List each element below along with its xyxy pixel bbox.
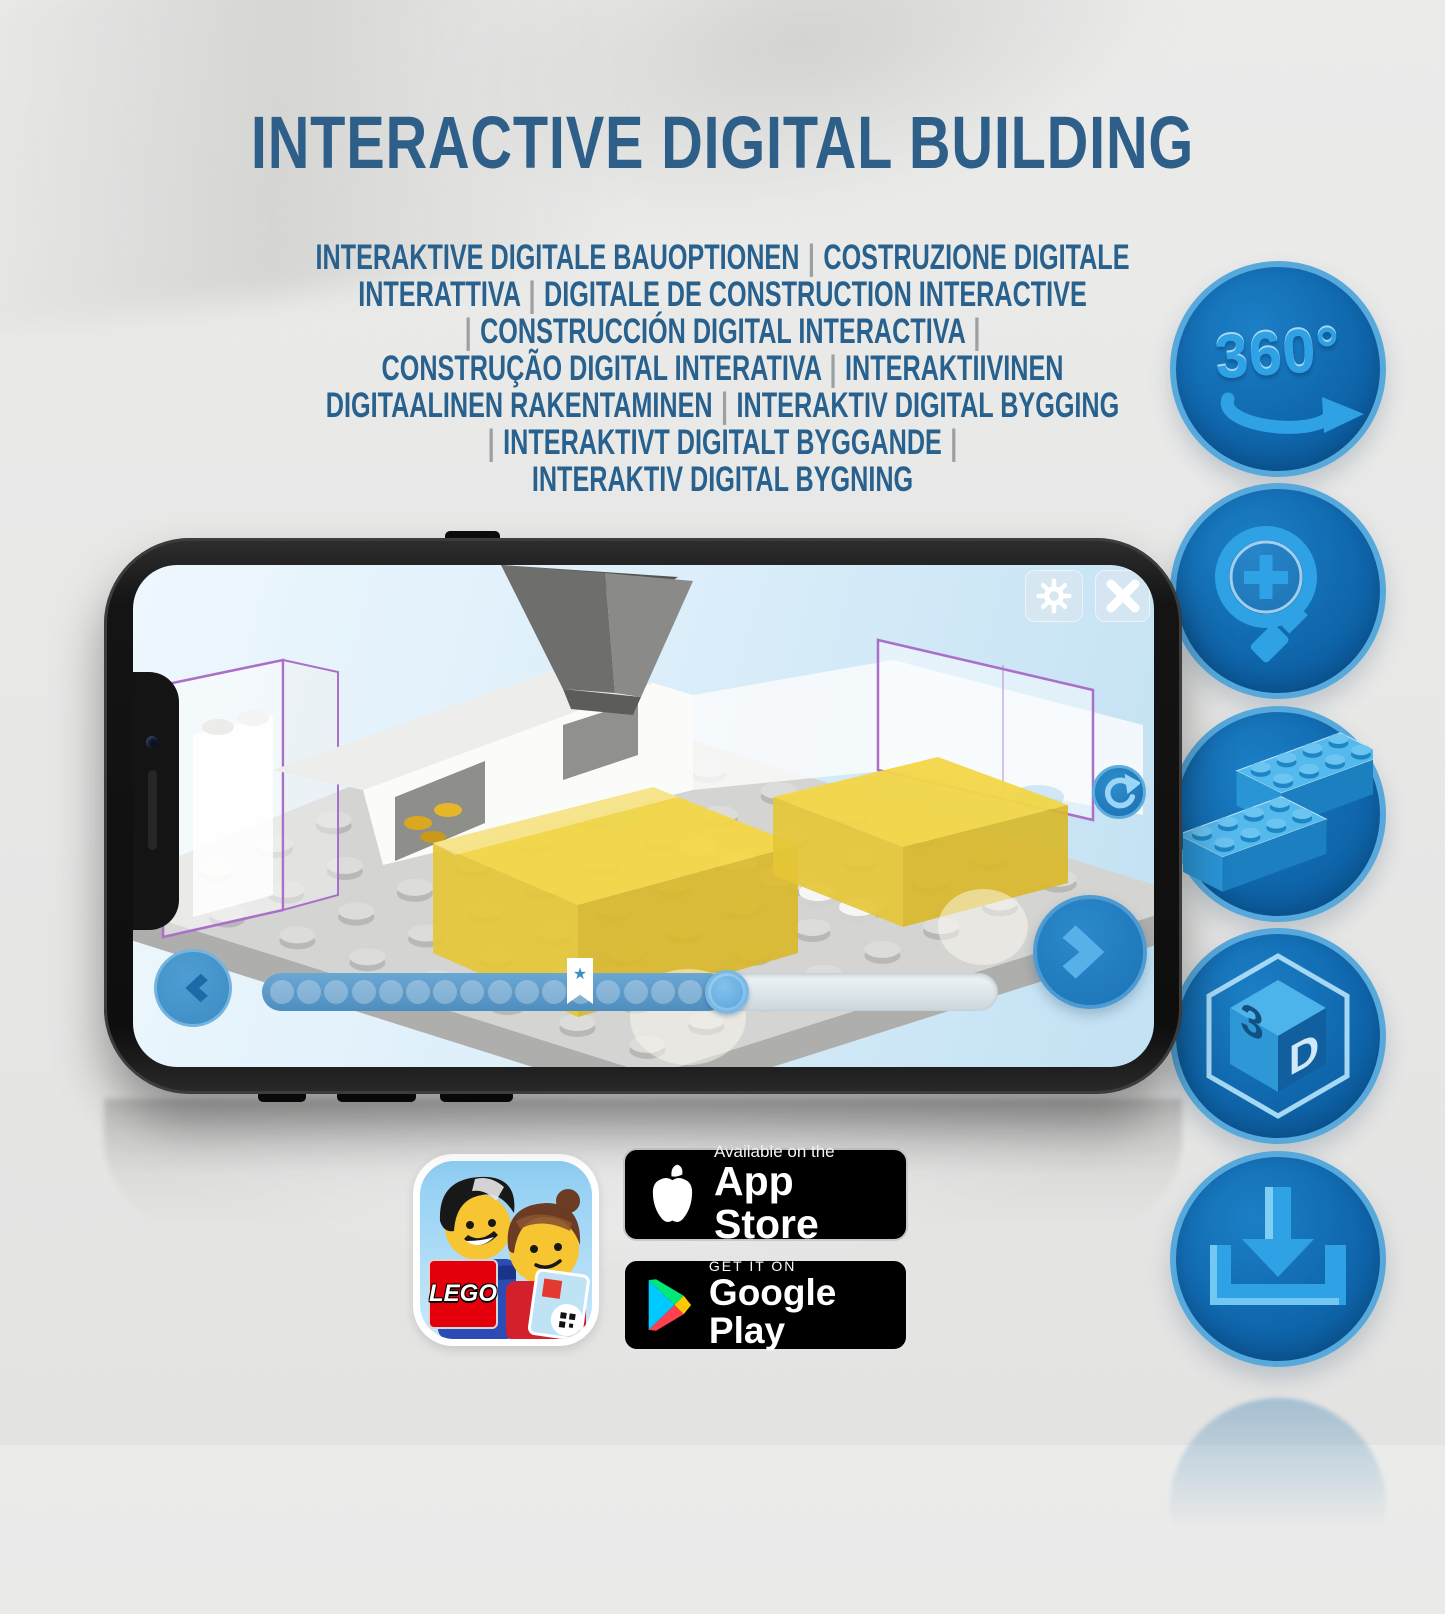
subtitle-line: CONSTRUÇÃO DIGITAL INTERATIVA | INTERAKT… — [202, 350, 1242, 387]
slider-knob[interactable] — [705, 970, 749, 1014]
gear-icon — [1032, 574, 1076, 618]
zoom-in-icon — [1170, 483, 1386, 699]
refresh-icon — [1098, 771, 1140, 813]
reset-view-button[interactable] — [1092, 765, 1146, 819]
page-title: INTERACTIVE DIGITAL BUILDING — [159, 100, 1286, 185]
magnifier-plus-glyph — [1198, 511, 1358, 671]
phone-notch — [133, 672, 179, 930]
lego-app-icon[interactable]: LEGO — [413, 1154, 599, 1346]
lego-bricks-glyph — [1183, 719, 1373, 909]
cube-3d-icon: 3 D — [1170, 928, 1386, 1144]
subtitle-line: INTERATTIVA | DIGITALE DE CONSTRUCTION I… — [202, 276, 1242, 313]
subtitle-line: | INTERAKTIVT DIGITALT BYGGANDE | — [202, 424, 1242, 461]
chevron-left-icon — [171, 966, 215, 1010]
apple-icon — [647, 1164, 698, 1226]
download-glyph — [1193, 1174, 1363, 1344]
brick-icon — [1170, 706, 1386, 922]
settings-button[interactable] — [1025, 570, 1083, 622]
progress-fill — [262, 973, 727, 1011]
subtitle-line: | CONSTRUCCIÓN DIGITAL INTERACTIVA | — [202, 313, 1242, 350]
smartphone: ★ — [104, 538, 1182, 1094]
previous-step-button[interactable] — [154, 949, 232, 1027]
next-step-button[interactable] — [1033, 895, 1147, 1009]
rotate-arrow-icon — [1194, 377, 1374, 457]
subtitle-line: INTERAKTIVE DIGITALE BAUOPTIONEN | COSTR… — [202, 239, 1242, 276]
app-store-label: App Store — [714, 1160, 906, 1246]
app-store-badge[interactable]: Available on the App Store — [623, 1148, 908, 1241]
google-play-label: Google Play — [709, 1274, 906, 1352]
download-icon — [1170, 1151, 1386, 1367]
cube-3d-glyph: 3 D — [1185, 943, 1371, 1129]
close-icon — [1103, 576, 1143, 616]
earpiece-speaker — [148, 770, 157, 850]
rotate-360-icon: 360° — [1170, 261, 1386, 477]
icon-reflection — [1170, 1398, 1386, 1614]
subtitle-line: INTERAKTIV DIGITAL BYGNING — [202, 461, 1242, 498]
multilingual-subtitle: INTERAKTIVE DIGITALE BAUOPTIONEN | COSTR… — [202, 239, 1242, 498]
lego-logo: LEGO — [428, 1259, 498, 1329]
google-play-badge[interactable]: GET IT ON Google Play — [623, 1259, 908, 1351]
lego-app-screen: ★ — [133, 565, 1154, 1067]
subtitle-line: DIGITAALINEN RAKENTAMINEN | INTERAKTIV D… — [202, 387, 1242, 424]
build-progress-slider[interactable]: ★ — [262, 973, 998, 1011]
front-camera — [146, 736, 158, 748]
google-play-icon — [645, 1276, 693, 1334]
chevron-right-icon — [1052, 914, 1128, 990]
close-button[interactable] — [1095, 570, 1150, 622]
